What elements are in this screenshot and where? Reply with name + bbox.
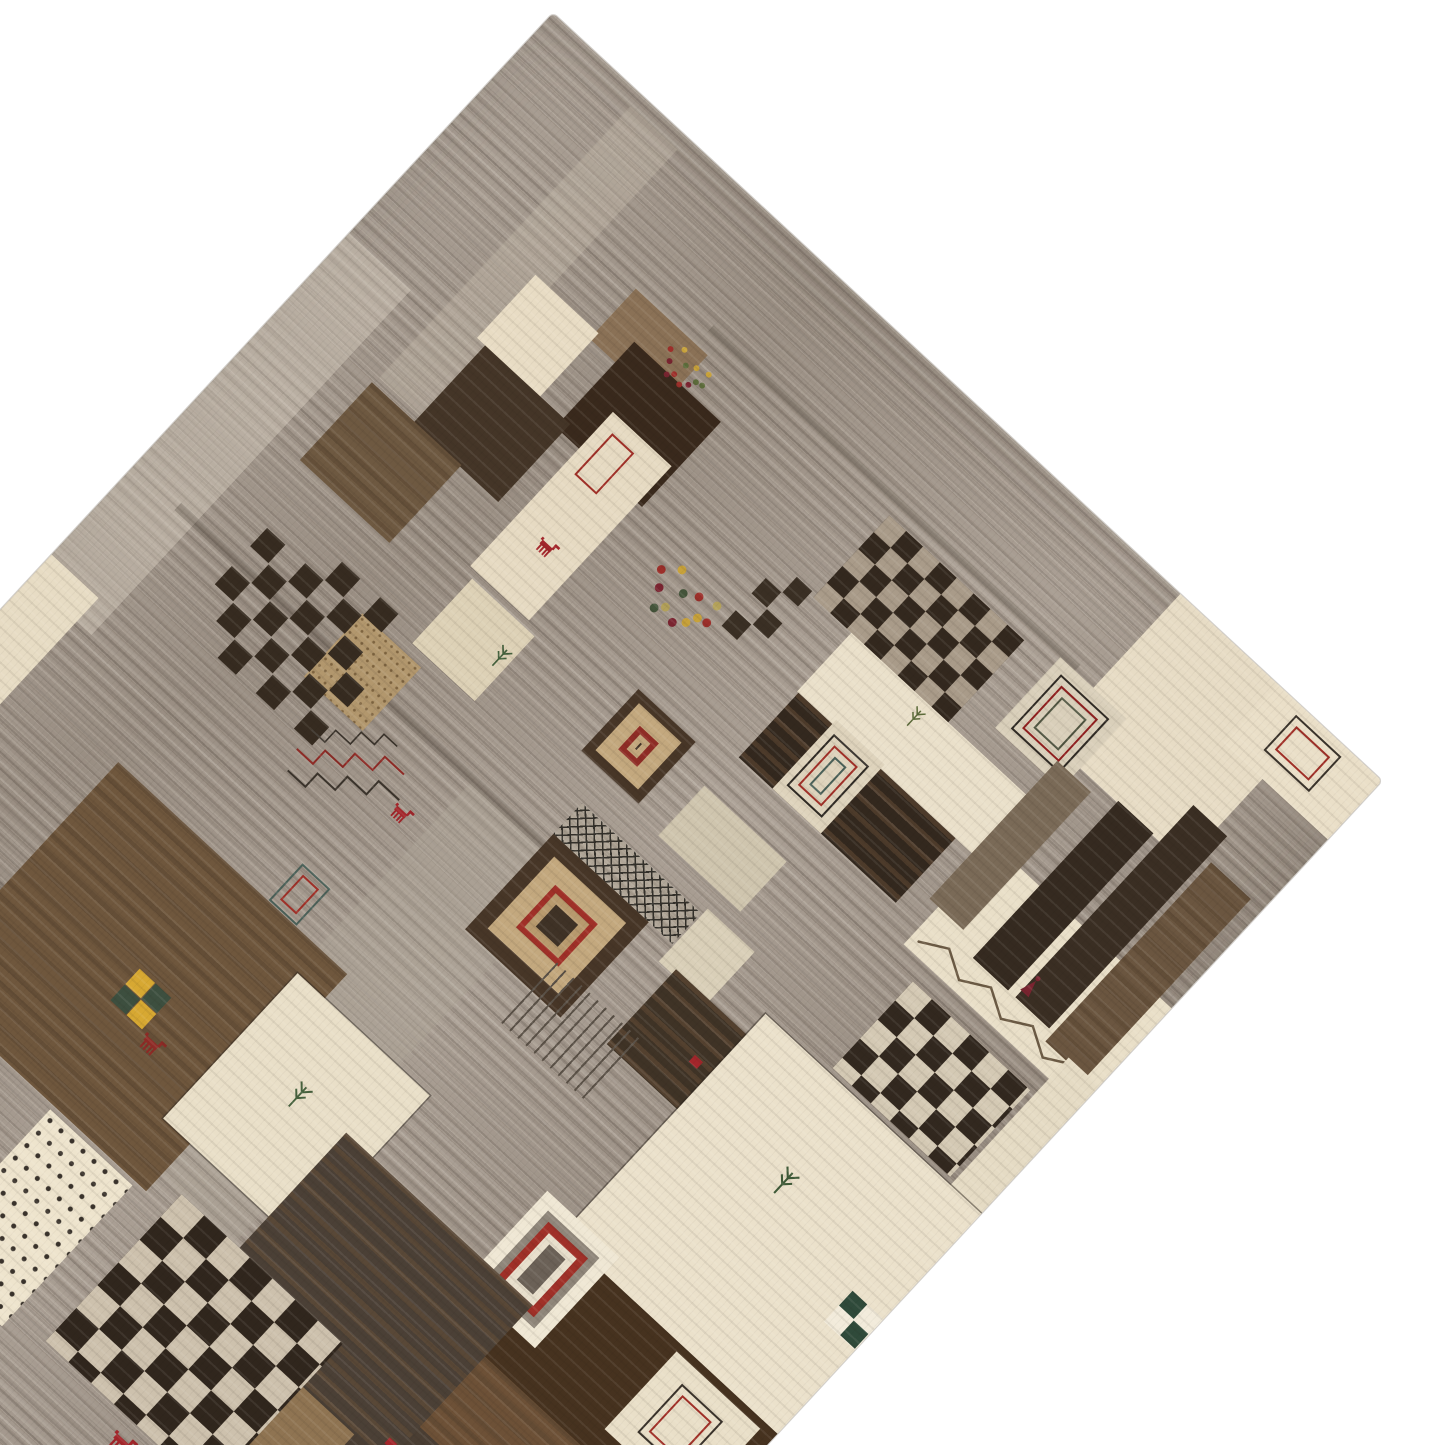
photo-background [0,0,1445,1445]
gabbeh-rug [0,13,1382,1445]
horse-motif-bottom-icon [103,1424,142,1445]
cream-edge-strip [0,554,99,759]
horse-motif-bottom [103,1424,142,1445]
medallion-upper [581,689,695,804]
pinstripe-block [501,962,643,1102]
